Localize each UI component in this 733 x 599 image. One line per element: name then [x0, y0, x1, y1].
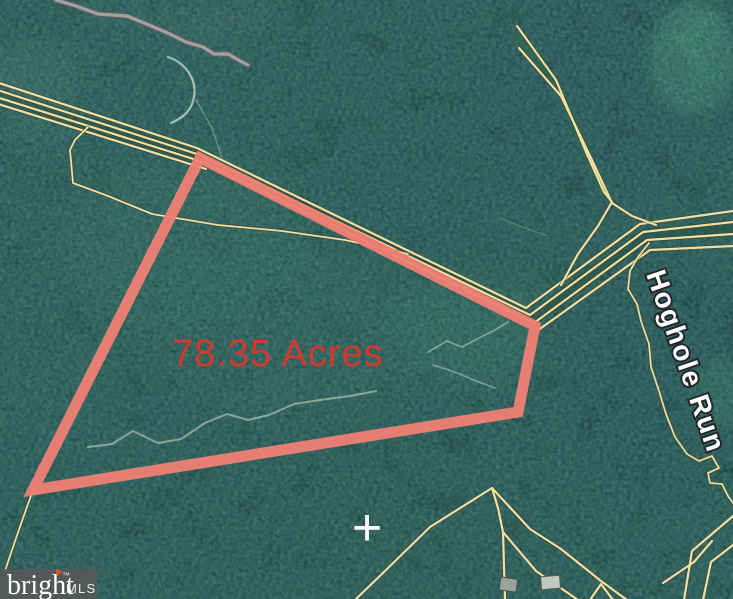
- watermark-trademark: ™: [62, 571, 70, 580]
- listing-map: 78.35 Acres Hoghole Run + bright ™ MLS: [0, 0, 733, 599]
- acreage-label: 78.35 Acres: [172, 333, 384, 375]
- watermark-suffix: MLS: [66, 581, 96, 596]
- crosshair-marker: +: [352, 499, 382, 557]
- watermark: bright ™ MLS: [0, 569, 97, 599]
- map-canvas[interactable]: 78.35 Acres Hoghole Run + bright ™ MLS: [0, 0, 733, 599]
